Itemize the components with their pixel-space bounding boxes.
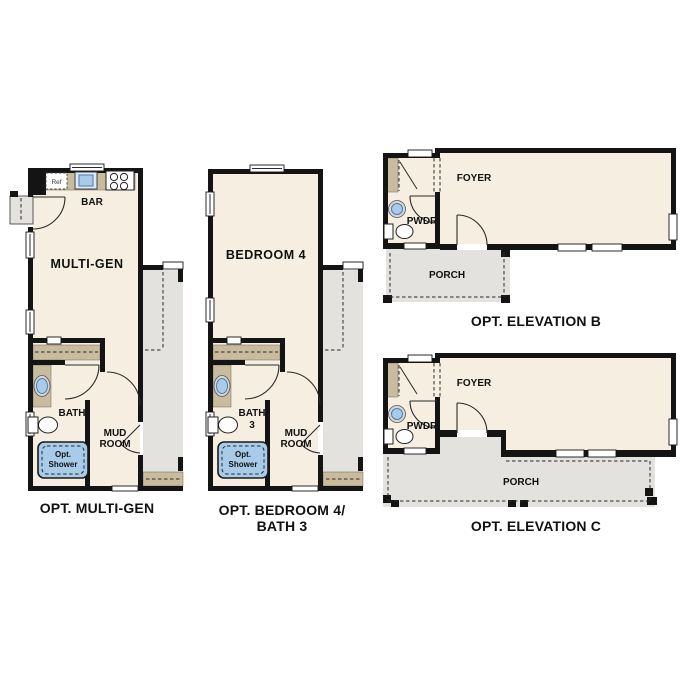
bath-label: BATH: [58, 408, 85, 419]
wall: [435, 148, 676, 153]
plan-caption: OPT. ELEVATION B: [471, 313, 601, 329]
foyer-label: FOYER: [457, 173, 492, 184]
wall: [208, 436, 213, 491]
bar-label: BAR: [81, 197, 103, 208]
plan-opt-elevation-b: FOYER PWDR PORCH OPT. ELEVATION B: [383, 148, 677, 329]
porch-post: [501, 295, 510, 303]
plan-opt-bedroom4-bath3: BEDROOM 4 BATH 3 MUD ROOM Opt. Shower OP…: [206, 165, 363, 534]
pwdr-sink-basin: [392, 204, 403, 215]
bath3-label: BATH: [238, 408, 265, 419]
wall: [138, 455, 143, 491]
door-opening: [457, 244, 487, 250]
bedroom4-room-label: BEDROOM 4: [226, 248, 306, 262]
wall: [28, 227, 33, 232]
plan-caption: BATH 3: [257, 518, 308, 534]
wall: [28, 258, 33, 310]
porch-label: PORCH: [429, 270, 465, 281]
toilet-tank: [384, 429, 393, 444]
porch-label: PORCH: [503, 477, 539, 488]
wall: [178, 457, 183, 471]
wall: [318, 455, 323, 491]
plan-caption: OPT. MULTI-GEN: [40, 500, 155, 516]
bar-sink-basin: [79, 175, 93, 186]
window: [408, 355, 432, 362]
wall: [10, 191, 18, 197]
pwdr-label: PWDR: [407, 421, 438, 432]
ref-label: Ref: [51, 179, 61, 186]
wall: [208, 169, 213, 192]
floor-plan-canvas: Ref BAR MULTI-GEN BATH MUD ROOM Opt. Sho…: [0, 0, 687, 687]
floor-plan-sheet: Ref BAR MULTI-GEN BATH MUD ROOM Opt. Sho…: [0, 0, 687, 687]
wall: [320, 265, 343, 270]
toilet-tank: [28, 417, 38, 433]
pwdr-label: PWDR: [407, 216, 438, 227]
wall: [280, 338, 285, 372]
multi-gen-room-label: MULTI-GEN: [50, 257, 123, 271]
wall: [208, 216, 213, 298]
adjacent-area: [323, 270, 363, 472]
window: [343, 262, 363, 269]
porch-post: [645, 488, 653, 496]
cased-opening: [47, 337, 61, 344]
vanity-sink-basin: [217, 379, 228, 394]
wall: [28, 436, 33, 491]
wall: [28, 334, 33, 412]
wall: [435, 353, 676, 358]
wall: [318, 169, 323, 268]
pwdr-sink-basin: [392, 409, 403, 420]
plan-opt-multi-gen: Ref BAR MULTI-GEN BATH MUD ROOM Opt. Sho…: [10, 164, 183, 516]
cased-opening: [227, 337, 241, 344]
toilet-tank: [208, 417, 218, 433]
opt-shower-label: Opt.: [235, 450, 251, 459]
wall: [140, 265, 163, 270]
wall: [28, 360, 65, 365]
toilet-fixture: [39, 417, 58, 433]
wall: [138, 268, 143, 422]
plan-opt-elevation-c: FOYER PWDR PORCH OPT. ELEVATION C: [383, 353, 677, 534]
window: [408, 150, 432, 157]
window: [558, 244, 586, 251]
vanity-sink-basin: [37, 379, 48, 394]
opt-shower-label: Shower: [49, 460, 78, 469]
wall: [358, 457, 363, 471]
window: [669, 419, 677, 445]
porch-post: [383, 495, 391, 503]
wall: [208, 360, 245, 365]
window: [404, 448, 426, 454]
wall: [138, 168, 143, 268]
wall: [33, 338, 103, 343]
window: [588, 450, 616, 457]
mud-room-label: ROOM: [99, 439, 130, 450]
mud-room-label: MUD: [285, 428, 308, 439]
foyer-label: FOYER: [457, 378, 492, 389]
wall: [178, 268, 183, 282]
window: [556, 450, 584, 457]
wall: [318, 268, 323, 422]
plan-caption: OPT. BEDROOM 4/: [219, 502, 346, 518]
wall: [358, 268, 363, 282]
toilet-fixture: [219, 417, 238, 433]
elevation-b-floor: [386, 153, 673, 246]
wall: [28, 168, 33, 197]
adjacent-area: [143, 270, 183, 472]
porch-post: [383, 295, 392, 303]
wall: [33, 173, 46, 195]
opt-shower-label: Opt.: [55, 450, 71, 459]
window: [592, 244, 622, 251]
elevation-c-floor: [386, 358, 673, 452]
door-opening: [292, 486, 318, 491]
wall: [208, 322, 213, 412]
window: [669, 214, 677, 240]
porch-post: [501, 250, 510, 257]
toilet-tank: [384, 224, 393, 239]
mud-room-label: ROOM: [280, 439, 311, 450]
wall: [28, 486, 183, 491]
opt-shower-label: Shower: [229, 460, 258, 469]
bath3-label: 3: [249, 420, 255, 431]
wall: [208, 486, 363, 491]
window: [404, 243, 426, 249]
window: [163, 262, 183, 269]
door-opening: [457, 430, 487, 437]
mud-room-label: MUD: [104, 428, 127, 439]
wall: [213, 338, 283, 343]
wall: [100, 338, 105, 372]
door-opening: [112, 486, 138, 491]
plan-caption: OPT. ELEVATION C: [471, 518, 601, 534]
